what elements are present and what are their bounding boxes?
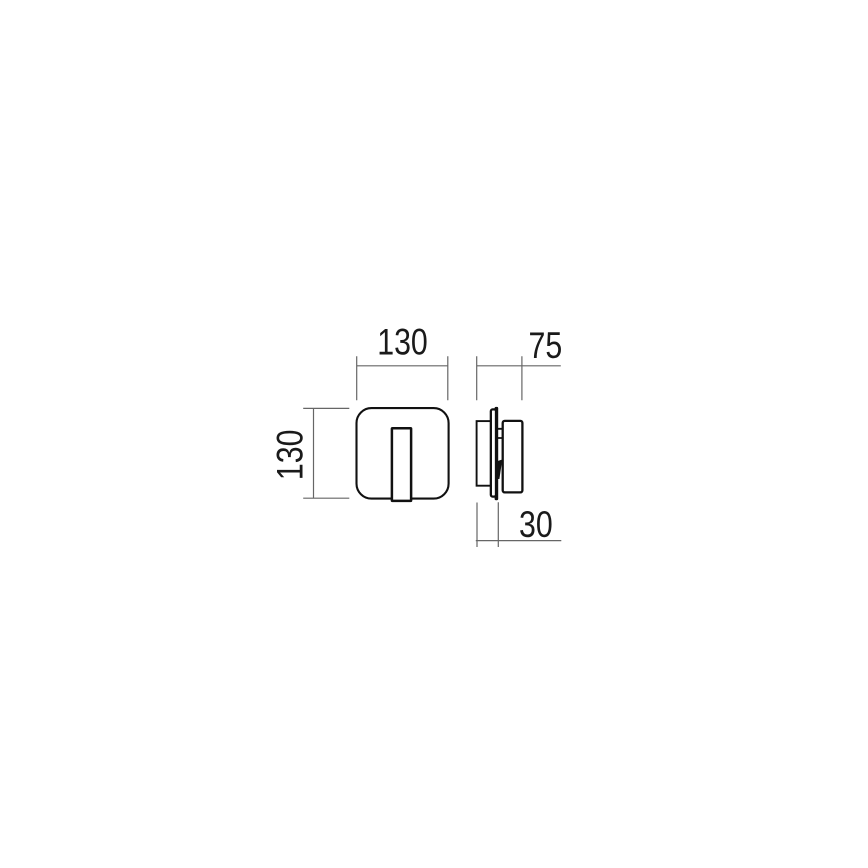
- svg-text:75: 75: [529, 325, 563, 367]
- svg-text:30: 30: [519, 504, 553, 546]
- svg-text:130: 130: [270, 429, 312, 480]
- svg-text:130: 130: [377, 322, 428, 364]
